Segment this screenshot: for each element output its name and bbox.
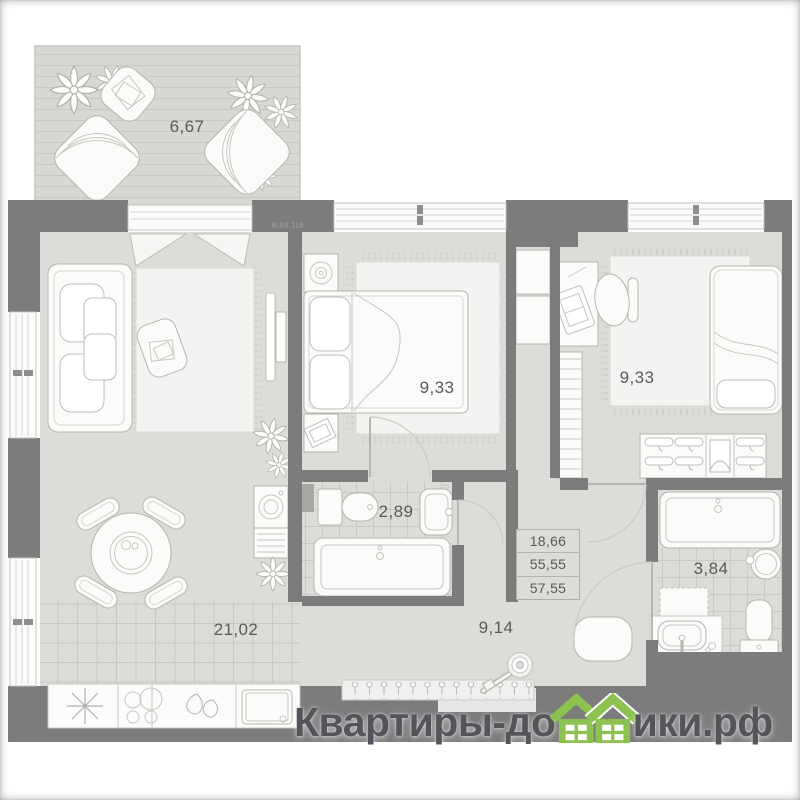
room-area-label-terrace: 6,67 xyxy=(170,117,205,137)
balcony-door xyxy=(128,205,252,230)
duct xyxy=(302,484,314,512)
nightstand xyxy=(304,254,338,292)
summary-row: 57,55 xyxy=(517,576,579,599)
pouf xyxy=(574,617,632,661)
bed-single xyxy=(710,266,782,414)
summary-row: 18,66 xyxy=(517,530,579,552)
sofa xyxy=(48,264,132,432)
window-bedroom1 xyxy=(334,203,506,229)
room-area-label-bathroom-small: 2,89 xyxy=(379,502,414,522)
room-area-label-bedroom1: 9,33 xyxy=(420,378,455,398)
sink xyxy=(650,616,722,655)
watermark-suffix: ики.рф xyxy=(633,696,773,748)
houses-logo-icon xyxy=(550,693,639,745)
washing-machine xyxy=(254,486,288,528)
room-area-label-hallway: 9,14 xyxy=(479,618,514,638)
watermark-prefix: Квартиры-до xyxy=(294,696,556,748)
bath-mat xyxy=(660,588,708,618)
sink xyxy=(420,485,453,536)
nightstand xyxy=(304,414,338,452)
kitchen-counter xyxy=(48,684,300,728)
room-area-label-bathroom-large: 3,84 xyxy=(694,559,729,579)
extractor-icon xyxy=(67,688,103,724)
floor-plan xyxy=(0,0,800,800)
window-kitchen xyxy=(10,558,36,686)
floorplan-screenshot: В.03.116 6,67 9,33 9,33 2,89 3,84 9,14 2… xyxy=(0,0,800,800)
kitchen-sink xyxy=(242,690,292,724)
window-bedroom2 xyxy=(628,203,764,229)
room-area-label-bedroom2: 9,33 xyxy=(620,368,655,388)
watermark: Квартиры-до ики.рф xyxy=(294,692,773,748)
living-rug xyxy=(128,268,262,432)
bathtub xyxy=(660,492,780,548)
area-summary-box: 18,66 55,55 57,55 xyxy=(516,529,580,600)
window-living xyxy=(10,312,36,438)
bathtub xyxy=(314,538,450,596)
oven xyxy=(254,528,288,558)
kitchen-tiles xyxy=(40,602,300,688)
summary-row: 55,55 xyxy=(517,552,579,575)
kitchen-plant-icon xyxy=(256,557,290,591)
bathroom-small xyxy=(302,482,453,598)
shelf-ladder-rungs xyxy=(557,354,581,476)
room-area-label-kitchen-living: 21,02 xyxy=(214,620,259,640)
shaft-cabinet xyxy=(516,250,550,344)
unit-code-label: В.03.116 xyxy=(272,223,304,230)
wardrobe xyxy=(640,434,766,478)
